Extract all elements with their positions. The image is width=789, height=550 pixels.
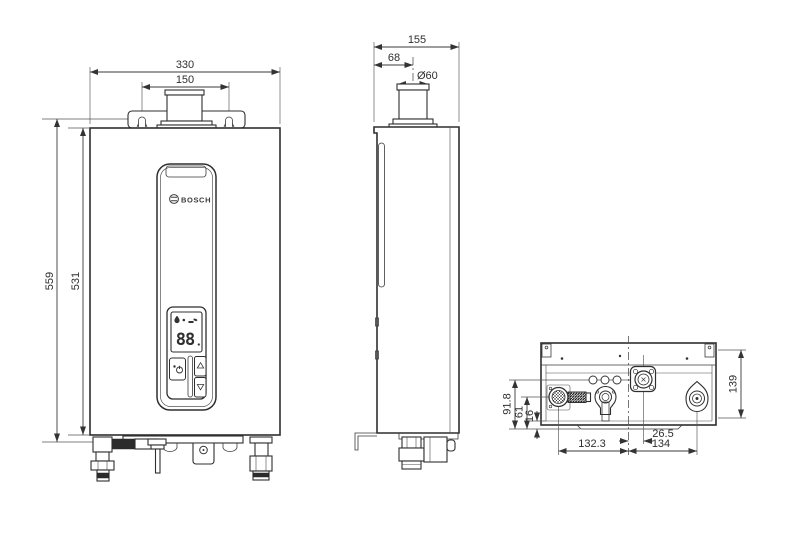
water-connection-front: [250, 437, 272, 480]
technical-drawing-page: 330 150 559 531: [0, 0, 789, 550]
dim-flue-diameter: Ø60: [398, 70, 438, 84]
side-view: 155 68 Ø60: [355, 34, 459, 469]
up-button[interactable]: [195, 357, 207, 377]
display-unit-dot: [198, 343, 200, 345]
dim-flue-offset: 68: [374, 52, 413, 65]
front-view: 330 150 559 531: [42, 59, 280, 481]
water-connection: [631, 367, 656, 392]
dim-cabinet-height-label: 531: [70, 272, 82, 290]
dim-front-width: 330: [90, 59, 280, 72]
power-dot-icon: [173, 365, 175, 367]
dim-front-offset: 16: [524, 410, 537, 439]
temperature-display: 88: [176, 330, 195, 350]
power-button[interactable]: [170, 358, 186, 380]
bottom-view: 139 91.8 61 16 26.5 132.3 134: [502, 336, 747, 455]
dim-gas-to-center-label: 132.3: [578, 438, 606, 450]
drawing-svg: 330 150 559 531: [0, 0, 789, 550]
down-button[interactable]: [195, 378, 207, 398]
screw-dot-3: [686, 357, 689, 360]
dim-flue-offset-label: 68: [388, 52, 400, 64]
flue-pipe-side: [389, 84, 437, 127]
pilot-holes: [589, 376, 621, 384]
screw-dot-2: [619, 355, 621, 357]
dim-slot-spacing-label: 150: [176, 74, 194, 86]
dim-slot-spacing: 150: [142, 74, 229, 87]
dim-depth-label: 155: [408, 34, 426, 46]
cabinet-side: [374, 127, 459, 433]
control-panel: 88: [167, 307, 206, 399]
dim-front-offset-label: 16: [524, 410, 536, 422]
dim-front-width-label: 330: [176, 59, 194, 71]
dim-cabinet-height: 531: [70, 128, 83, 435]
flue-pipe-front: [157, 90, 216, 128]
side-nub: [447, 440, 455, 451]
dim-gas-to-center: 132.3: [559, 438, 629, 451]
brand-text: BOSCH: [181, 196, 211, 205]
dim-water-offset-label: 91.8: [502, 393, 514, 414]
dim-depth: 155: [374, 34, 459, 47]
gas-pipe-thread: [568, 392, 586, 403]
dim-center-to-right-label: 134: [652, 438, 670, 450]
drain-valve-front: [148, 439, 166, 473]
burner-dot-icon: [183, 319, 186, 322]
dim-bottom-depth-label: 139: [728, 375, 740, 393]
dim-flue-diameter-label: Ø60: [417, 70, 438, 82]
bottom-fittings-front: [91, 436, 272, 481]
dim-center-to-right: 134: [629, 438, 698, 451]
hanger-right: [223, 443, 237, 452]
bottom-bracket: [355, 433, 377, 450]
dim-water-offset: 91.8: [502, 380, 516, 429]
dim-overall-height: 559: [44, 119, 57, 442]
bottom-fittings-side: [399, 437, 455, 469]
screw-dot-1: [561, 357, 564, 360]
dim-bottom-depth: 139: [728, 350, 742, 418]
dim-overall-height-label: 559: [44, 272, 56, 290]
